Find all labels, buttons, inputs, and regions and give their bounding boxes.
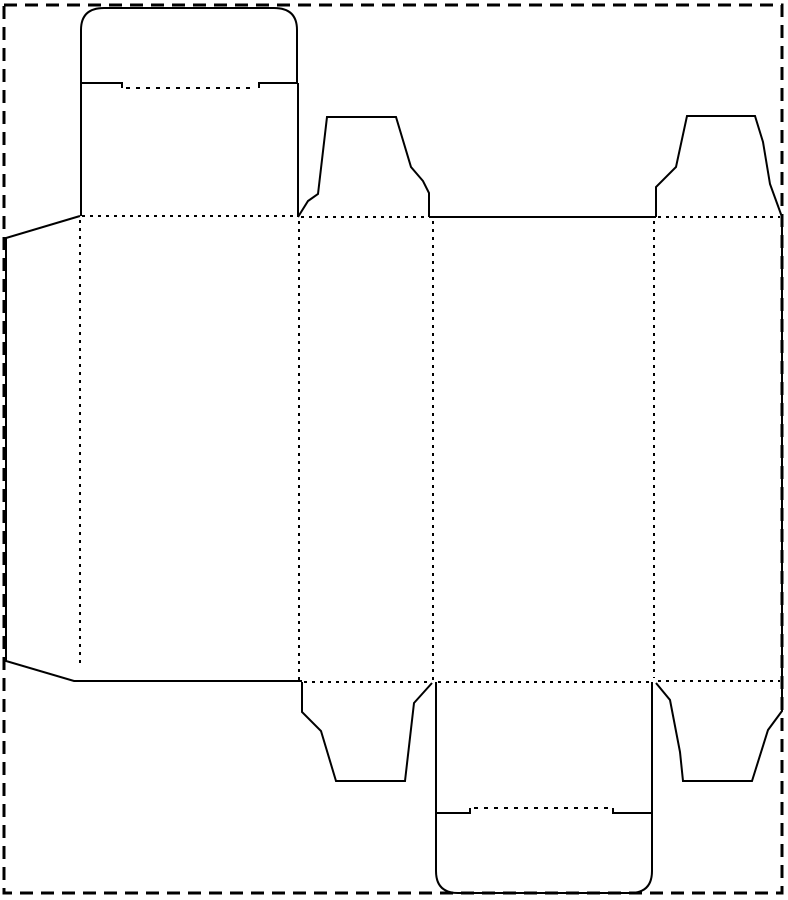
dust-flap-top-right-outline — [656, 116, 782, 217]
tuck-lid-bottom-shoulder-left — [436, 808, 470, 813]
dieline-svg — [0, 0, 788, 900]
tuck-lid-top-shoulder-right — [259, 83, 298, 88]
dieline-page — [0, 0, 788, 900]
tuck-lid-bottom-shoulder-right — [613, 808, 652, 813]
tuck-lid-bottom-outline — [436, 813, 652, 893]
tuck-lid-top-shoulder-left — [81, 83, 122, 88]
tuck-lid-top-outline — [81, 8, 297, 83]
dust-flap-top-left-outline — [298, 117, 429, 217]
dust-flap-bottom-left-outline — [302, 682, 432, 781]
glue-flap-outline — [6, 216, 302, 681]
page-border — [4, 5, 782, 893]
dust-flap-bottom-right-outline — [656, 682, 782, 781]
